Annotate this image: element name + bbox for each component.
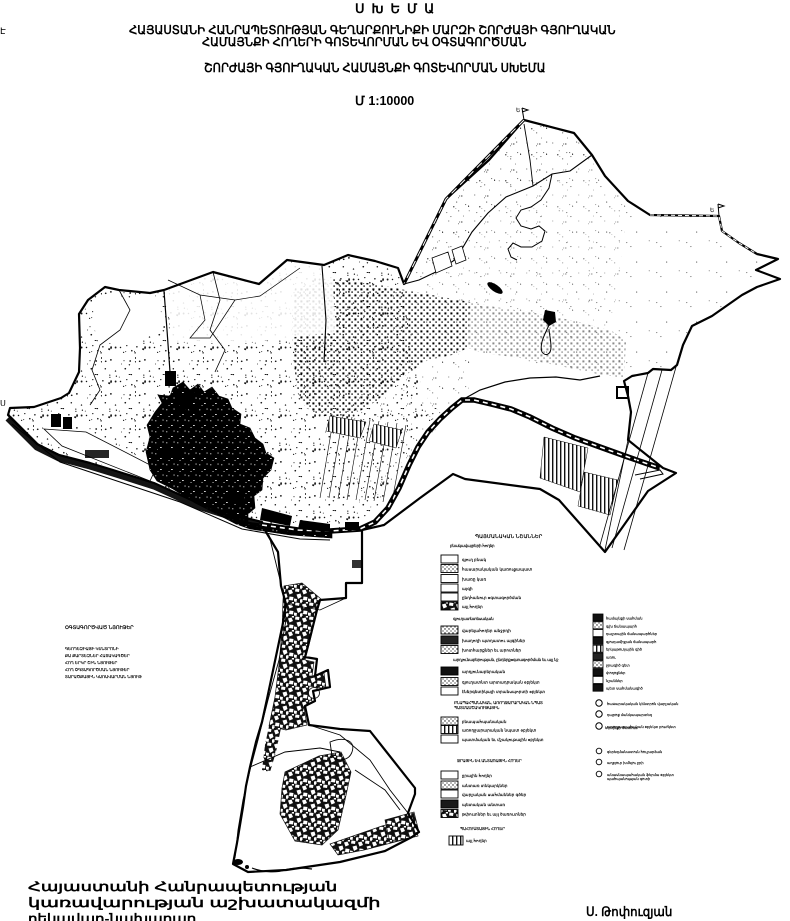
svg-text:ԳԵՈԴԵԶԻԱՅԻ ԿԵՆՏՐՈՆԻ: ԳԵՈԴԵԶԻԱՅԻ ԿԵՆՏՐՈՆԻ: [65, 646, 119, 651]
svg-text:արդյունաբերության, ընդերքօգտագ: արդյունաբերության, ընդերքօգտագործման եւ …: [453, 657, 558, 662]
svg-text:հասարակական կառուցապատ: հասարակական կառուցապատ: [462, 567, 532, 573]
svg-text:ՊԱՅՄԱՆԱԿԱՆ ՆՇԱՆՆԵՐ: ՊԱՅՄԱՆԱԿԱՆ ՆՇԱՆՆԵՐ: [475, 534, 543, 540]
svg-text:այլ հողեր: այլ հողեր: [466, 838, 487, 843]
svg-text:դաշտային ճանապարհներ: դաշտային ճանապարհներ: [606, 631, 658, 636]
svg-text:ԲՆԱՊԱՀՊԱՆԱԿԱՆ, ԱՌՈՂՋԱՐԱՐԱԿԱՆ Ն: ԲՆԱՊԱՀՊԱՆԱԿԱՆ, ԱՌՈՂՋԱՐԱՐԱԿԱՆ ՆՊԱՏ: [454, 700, 543, 705]
svg-text:աղբյուր խմելու ջրի: աղբյուր խմելու ջրի: [607, 760, 644, 765]
svg-text:ՋՐԱՅԻՆ ԵՎ ԱՆՏԱՌԱՅԻՆ ՀՈՂԵՐ: ՋՐԱՅԻՆ ԵՎ ԱՆՏԱՌԱՅԻՆ ՀՈՂԵՐ: [457, 758, 522, 763]
svg-text:գլխ ճանապարհ: գլխ ճանապարհ: [606, 623, 638, 628]
svg-text:ՀՈՂ ԵՐԿՐ ՇԻՆ ՆՅՈՒԹԵՐ: ՀՈՂ ԵՐԿՐ ՇԻՆ ՆՅՈՒԹԵՐ: [65, 660, 118, 665]
svg-text:եկեղեցի մատուռ: եկեղեցի մատուռ: [605, 725, 638, 731]
svg-text:վարչական սահմաններ գծեր: վարչական սահմաններ գծեր: [462, 792, 527, 797]
svg-text:խառը կառ: խառը կառ: [462, 577, 486, 582]
svg-text:ՊԱՀՈՒՍՏԱՅԻՆ ՀՈՂԵՐ: ՊԱՀՈՒՍՏԱՅԻՆ ՀՈՂԵՐ: [460, 826, 505, 831]
svg-text:խաղողի պտղատու այգիներ: խաղողի պտղատու այգիներ: [462, 638, 526, 643]
svg-text:դպրոց մանկապարտեզ: դպրոց մանկապարտեզ: [607, 712, 653, 718]
svg-text:առողջարարական նպատ օբյեկտ: առողջարարական նպատ օբյեկտ: [462, 728, 536, 733]
svg-text:բնապահպանական: բնապահպանական: [462, 719, 507, 724]
svg-text:արդյունաբերական: արդյունաբերական: [462, 669, 506, 674]
svg-text:ՊԱՏՄԱՄՇԱԿՈՒԹԱՅԻՆ: ՊԱՏՄԱՄՇԱԿՈՒԹԱՅԻՆ: [454, 705, 499, 710]
svg-text:բնակավայրերի հողեր: բնակավայրերի հողեր: [450, 543, 495, 548]
svg-text:առու: առու: [606, 656, 616, 660]
svg-text:համայնքի սահման: համայնքի սահման: [606, 616, 643, 621]
svg-text:պատմական եւ մշակութային օբյեկտ: պատմական եւ մշակութային օբյեկտ: [462, 737, 544, 742]
svg-text:գերեզմանատուն հուշարձան: գերեզմանատուն հուշարձան: [607, 749, 663, 754]
svg-text:այգի: այգի: [462, 586, 473, 591]
svg-text:վարելահողեր անջրդի: վարելահողեր անջրդի: [462, 628, 511, 633]
svg-text:անտառ տնկարկներ: անտառ տնկարկներ: [462, 783, 508, 788]
svg-text:պետական անտառ: պետական անտառ: [462, 802, 505, 807]
svg-text:թփուտներ եւ այլ ծառուտներ: թփուտներ եւ այլ ծառուտներ: [462, 812, 526, 817]
svg-text:պետ սահմանագիծ: պետ սահմանագիծ: [606, 686, 644, 691]
svg-text:գյուղ բնակ: գյուղ բնակ: [462, 557, 487, 562]
svg-text:գյուղատնտեսական: գյուղատնտեսական: [453, 616, 494, 621]
svg-text:խոտհարքներ եւ արոտներ: խոտհարքներ եւ արոտներ: [462, 648, 521, 653]
svg-text:այլ հողեր: այլ հողեր: [462, 604, 483, 609]
svg-text:փողոցներ: փողոցներ: [606, 670, 626, 676]
svg-text:ջրային հողեր: ջրային հողեր: [462, 773, 492, 778]
svg-text:երկաթուղային գիծ: երկաթուղային գիծ: [606, 647, 643, 652]
svg-text:էներգետիկայի տրանսպորտի օբյեկտ: էներգետիկայի տրանսպորտի օբյեկտ: [462, 689, 545, 694]
svg-text:հասարակական կենտրոն վարչական: հասարակական կենտրոն վարչական: [607, 701, 679, 706]
svg-text:ՕԳՏԱԳՈՐԾՎԱԾ ՆՅՈՒԹԵՐ: ՕԳՏԱԳՈՐԾՎԱԾ ՆՅՈՒԹԵՐ: [65, 624, 134, 631]
svg-text:պահպանության գոտի: պահպանության գոտի: [607, 776, 651, 781]
svg-text:ջրագիծ գետ: ջրագիծ գետ: [606, 662, 630, 667]
svg-text:ընդհանուր օգտագործման: ընդհանուր օգտագործման: [462, 595, 522, 600]
svg-text:ՀՈՂ ՕԳՏԱԳՈՐԾՄԱՆ ՆՅՈՒԹԵՐ: ՀՈՂ ՕԳՏԱԳՈՐԾՄԱՆ ՆՅՈՒԹԵՐ: [65, 667, 130, 672]
svg-text:գյուղատնտ արտադրական օբյեկտ: գյուղատնտ արտադրական օբյեկտ: [462, 680, 540, 685]
svg-text:գյուղամիջյան ճանապարհ: գյուղամիջյան ճանապարհ: [606, 639, 657, 644]
svg-text:ՏԱՐԱԾՔԱՅԻՆ ԿԱՌԱՎԱՐՄԱՆ ՆՅՈՒԹ: ՏԱՐԱԾՔԱՅԻՆ ԿԱՌԱՎԱՐՄԱՆ ՆՅՈՒԹ: [65, 674, 142, 679]
svg-text:ՔԱ ՔԱՐՏԵԶՆԵՐ ՀԱՏԱԿԱԳԾԵՐ: ՔԱ ՔԱՐՏԵԶՆԵՐ ՀԱՏԱԿԱԳԾԵՐ: [65, 653, 130, 658]
svg-text:նշաններ: նշաններ: [605, 678, 623, 683]
